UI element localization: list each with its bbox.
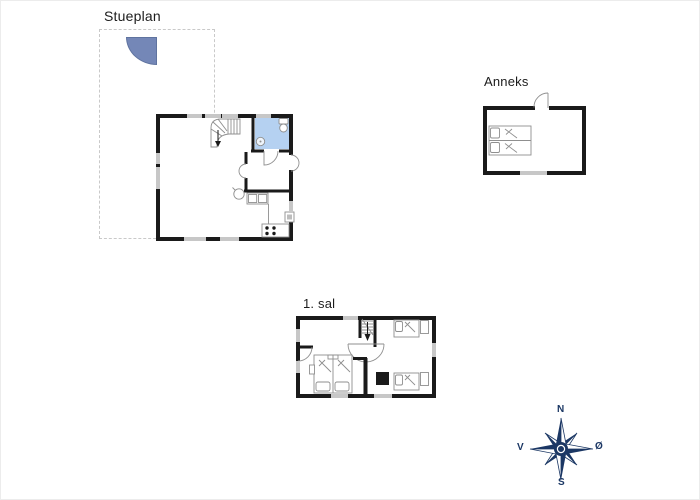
compass-rose xyxy=(530,418,593,480)
wall-appliance xyxy=(285,212,294,222)
first-floor-double-bed xyxy=(310,355,353,393)
nightstand xyxy=(421,373,429,386)
bathroom-sink xyxy=(256,137,264,145)
anneks-plan xyxy=(483,93,586,176)
compass-west-label: V xyxy=(517,442,524,453)
kitchen-sink xyxy=(247,193,268,204)
compass-east-label: Ø xyxy=(595,441,603,452)
toilet xyxy=(279,119,288,133)
compass-north-label: N xyxy=(557,404,564,415)
first-floor-plan xyxy=(296,316,436,398)
floorplan-page: Stueplan Anneks 1. sal xyxy=(0,0,700,500)
anneks-double-bed xyxy=(489,126,531,155)
stove xyxy=(262,224,289,237)
chimney xyxy=(376,372,389,385)
floorplan-drawing xyxy=(1,1,700,500)
compass-center xyxy=(554,442,568,456)
nightstand xyxy=(421,321,429,334)
compass-south-label: S xyxy=(558,477,565,488)
nightstand xyxy=(310,365,315,374)
stueplan-plan xyxy=(156,114,299,241)
